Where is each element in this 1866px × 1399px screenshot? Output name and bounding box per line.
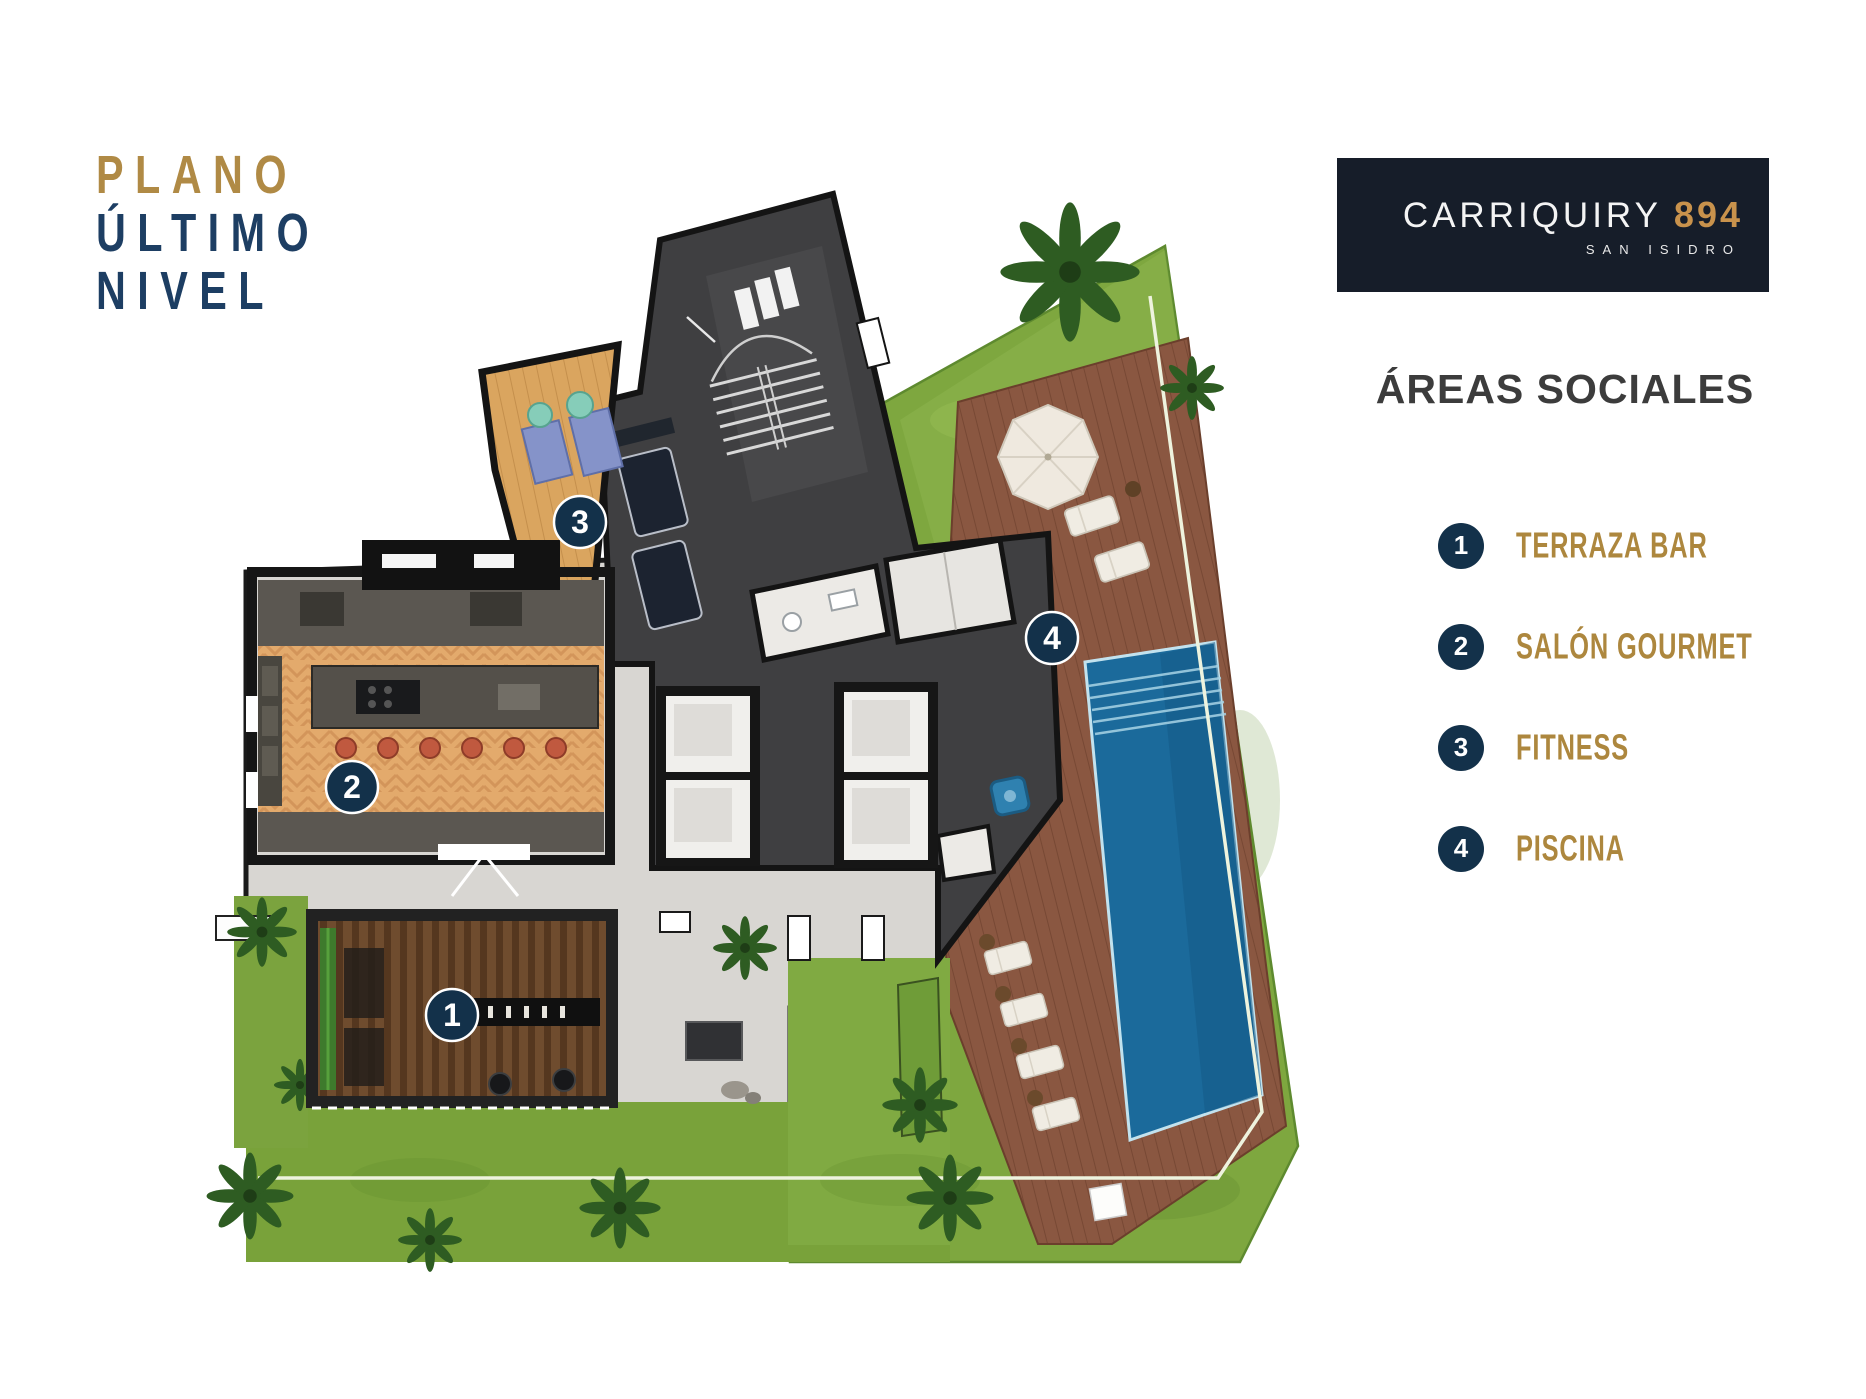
logo-number-text: 894 (1674, 194, 1743, 236)
legend-item-terraza-bar: 1 TERRAZA BAR (1438, 495, 1805, 596)
legend-item-label: PISCINA (1516, 828, 1625, 870)
logo-brand-text: CARRIQUIRY (1403, 196, 1662, 236)
legend-number-badge: 4 (1438, 826, 1484, 872)
gourmet-room (246, 540, 610, 896)
legend-number-badge: 2 (1438, 624, 1484, 670)
plan-marker-2: 2 (326, 761, 378, 813)
umbrella-icon (998, 405, 1098, 509)
title-line-1: PLANO (96, 142, 320, 208)
plan-title: PLANO ÚLTIMO NIVEL (96, 146, 351, 320)
legend-item-label: SALÓN GOURMET (1516, 626, 1753, 668)
brand-logo: CARRIQUIRY 894 SAN ISIDRO (1337, 158, 1769, 292)
legend-item-fitness: 3 FITNESS (1438, 697, 1805, 798)
legend-number-badge: 3 (1438, 725, 1484, 771)
svg-text:2: 2 (343, 769, 361, 805)
svg-text:4: 4 (1043, 620, 1061, 656)
legend-number-badge: 1 (1438, 523, 1484, 569)
logo-location-text: SAN ISIDRO (1586, 242, 1741, 257)
plan-marker-3: 3 (554, 496, 606, 548)
plan-marker-1: 1 (426, 989, 478, 1041)
svg-text:3: 3 (571, 504, 589, 540)
plan-marker-4: 4 (1026, 612, 1078, 664)
title-line-3: NIVEL (96, 258, 320, 324)
title-line-2: ÚLTIMO (96, 200, 320, 266)
legend-item-salon-gourmet: 2 SALÓN GOURMET (1438, 596, 1805, 697)
legend: 1 TERRAZA BAR 2 SALÓN GOURMET 3 FITNESS … (1438, 495, 1805, 899)
slide: 1 2 3 4 PLANO ÚLTIMO NIVEL CARRIQUIRY 89… (0, 0, 1866, 1399)
legend-item-piscina: 4 PISCINA (1438, 798, 1805, 899)
legend-item-label: FITNESS (1516, 727, 1629, 769)
building-core (600, 194, 1060, 960)
svg-text:1: 1 (443, 997, 461, 1033)
legend-heading: ÁREAS SOCIALES (1350, 366, 1780, 413)
spa-tub (990, 776, 1030, 816)
legend-item-label: TERRAZA BAR (1516, 525, 1708, 567)
